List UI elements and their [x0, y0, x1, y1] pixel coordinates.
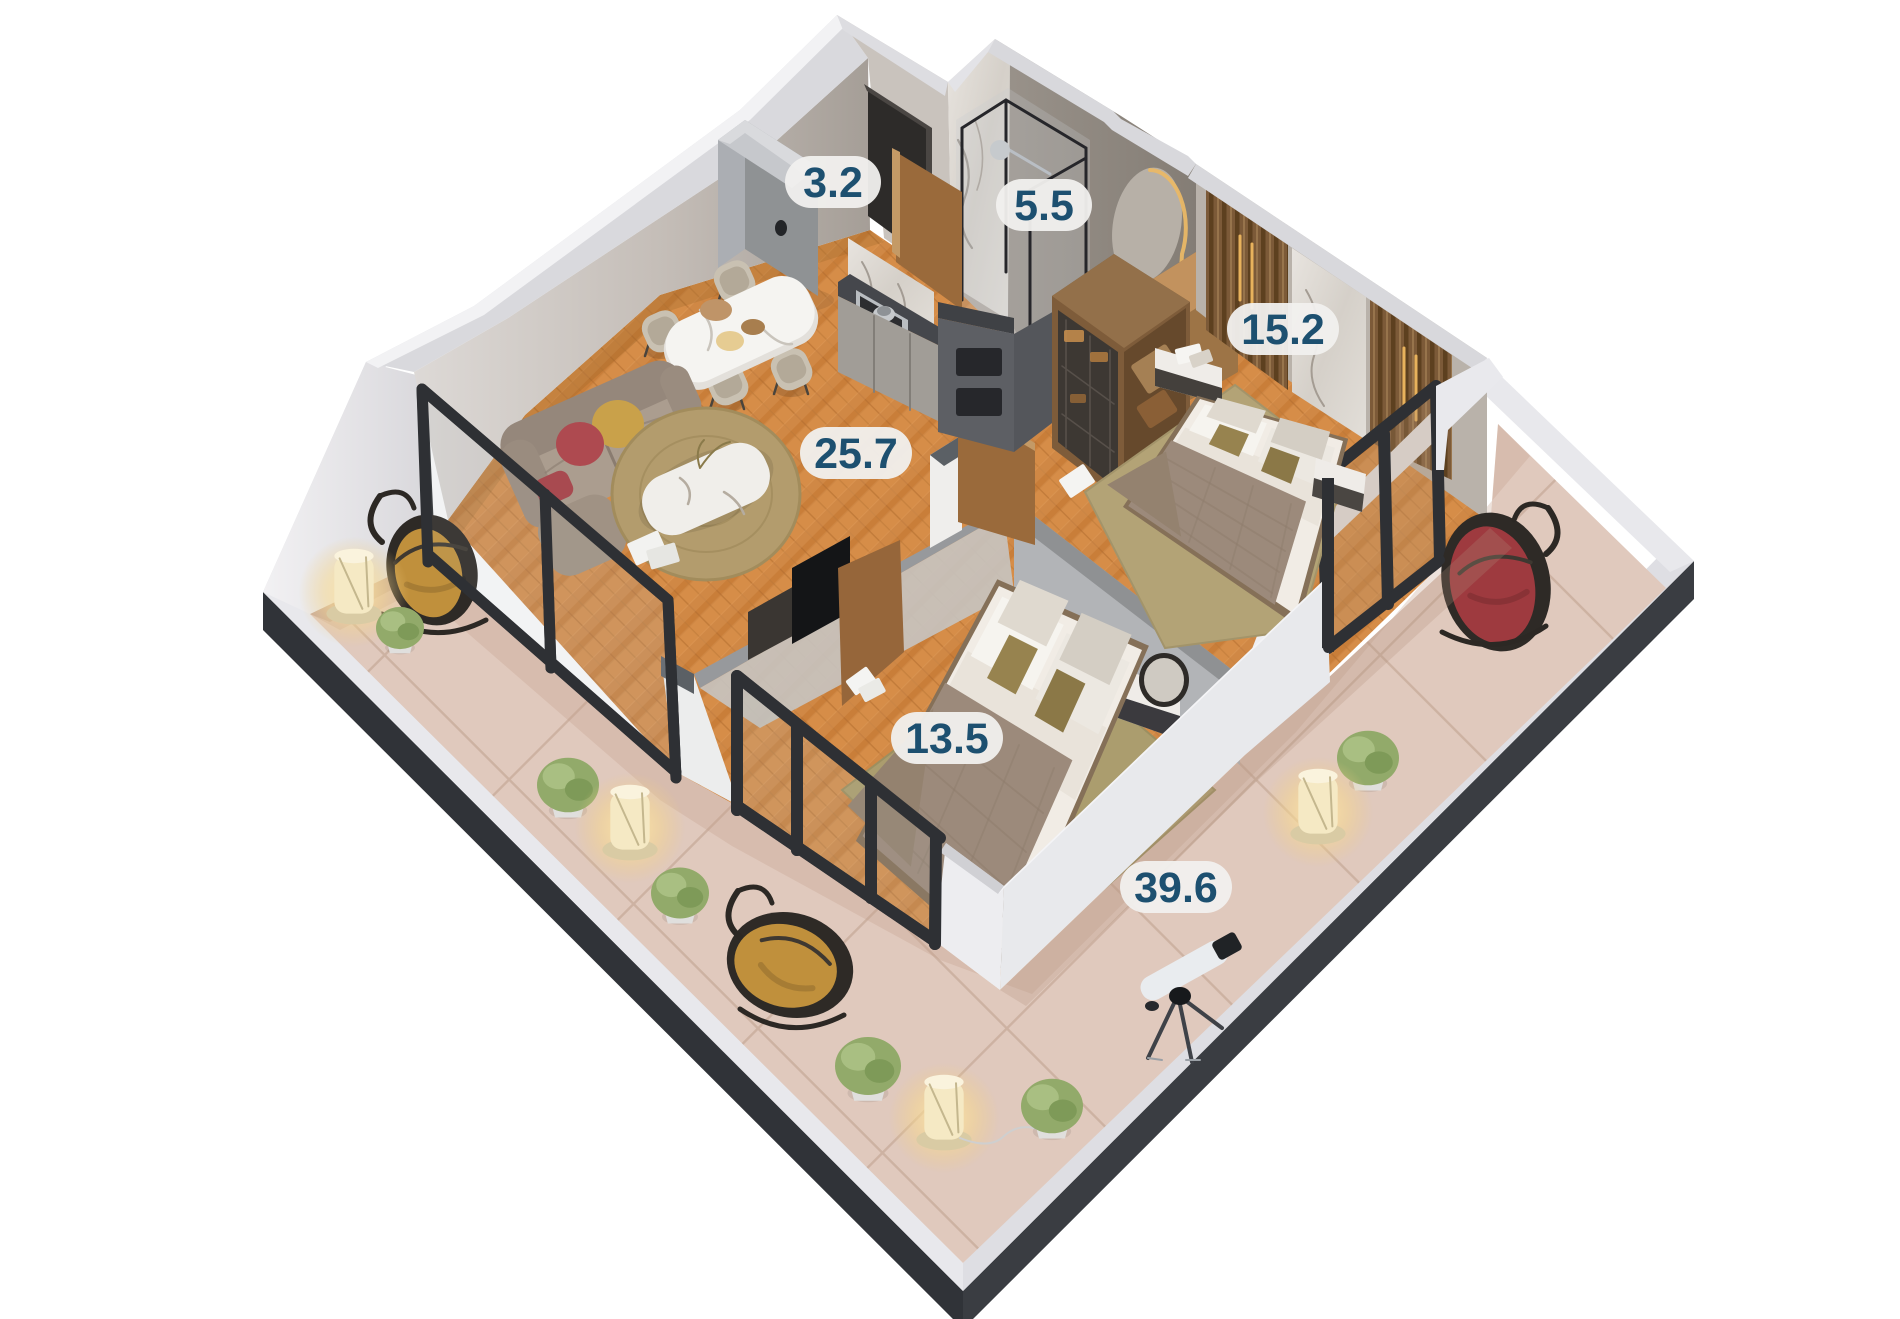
- svg-text:25.7: 25.7: [814, 430, 898, 478]
- svg-text:15.2: 15.2: [1241, 306, 1325, 354]
- svg-text:39.6: 39.6: [1134, 864, 1218, 912]
- svg-text:13.5: 13.5: [905, 715, 989, 763]
- svg-text:5.5: 5.5: [1014, 182, 1074, 230]
- svg-text:3.2: 3.2: [803, 159, 863, 207]
